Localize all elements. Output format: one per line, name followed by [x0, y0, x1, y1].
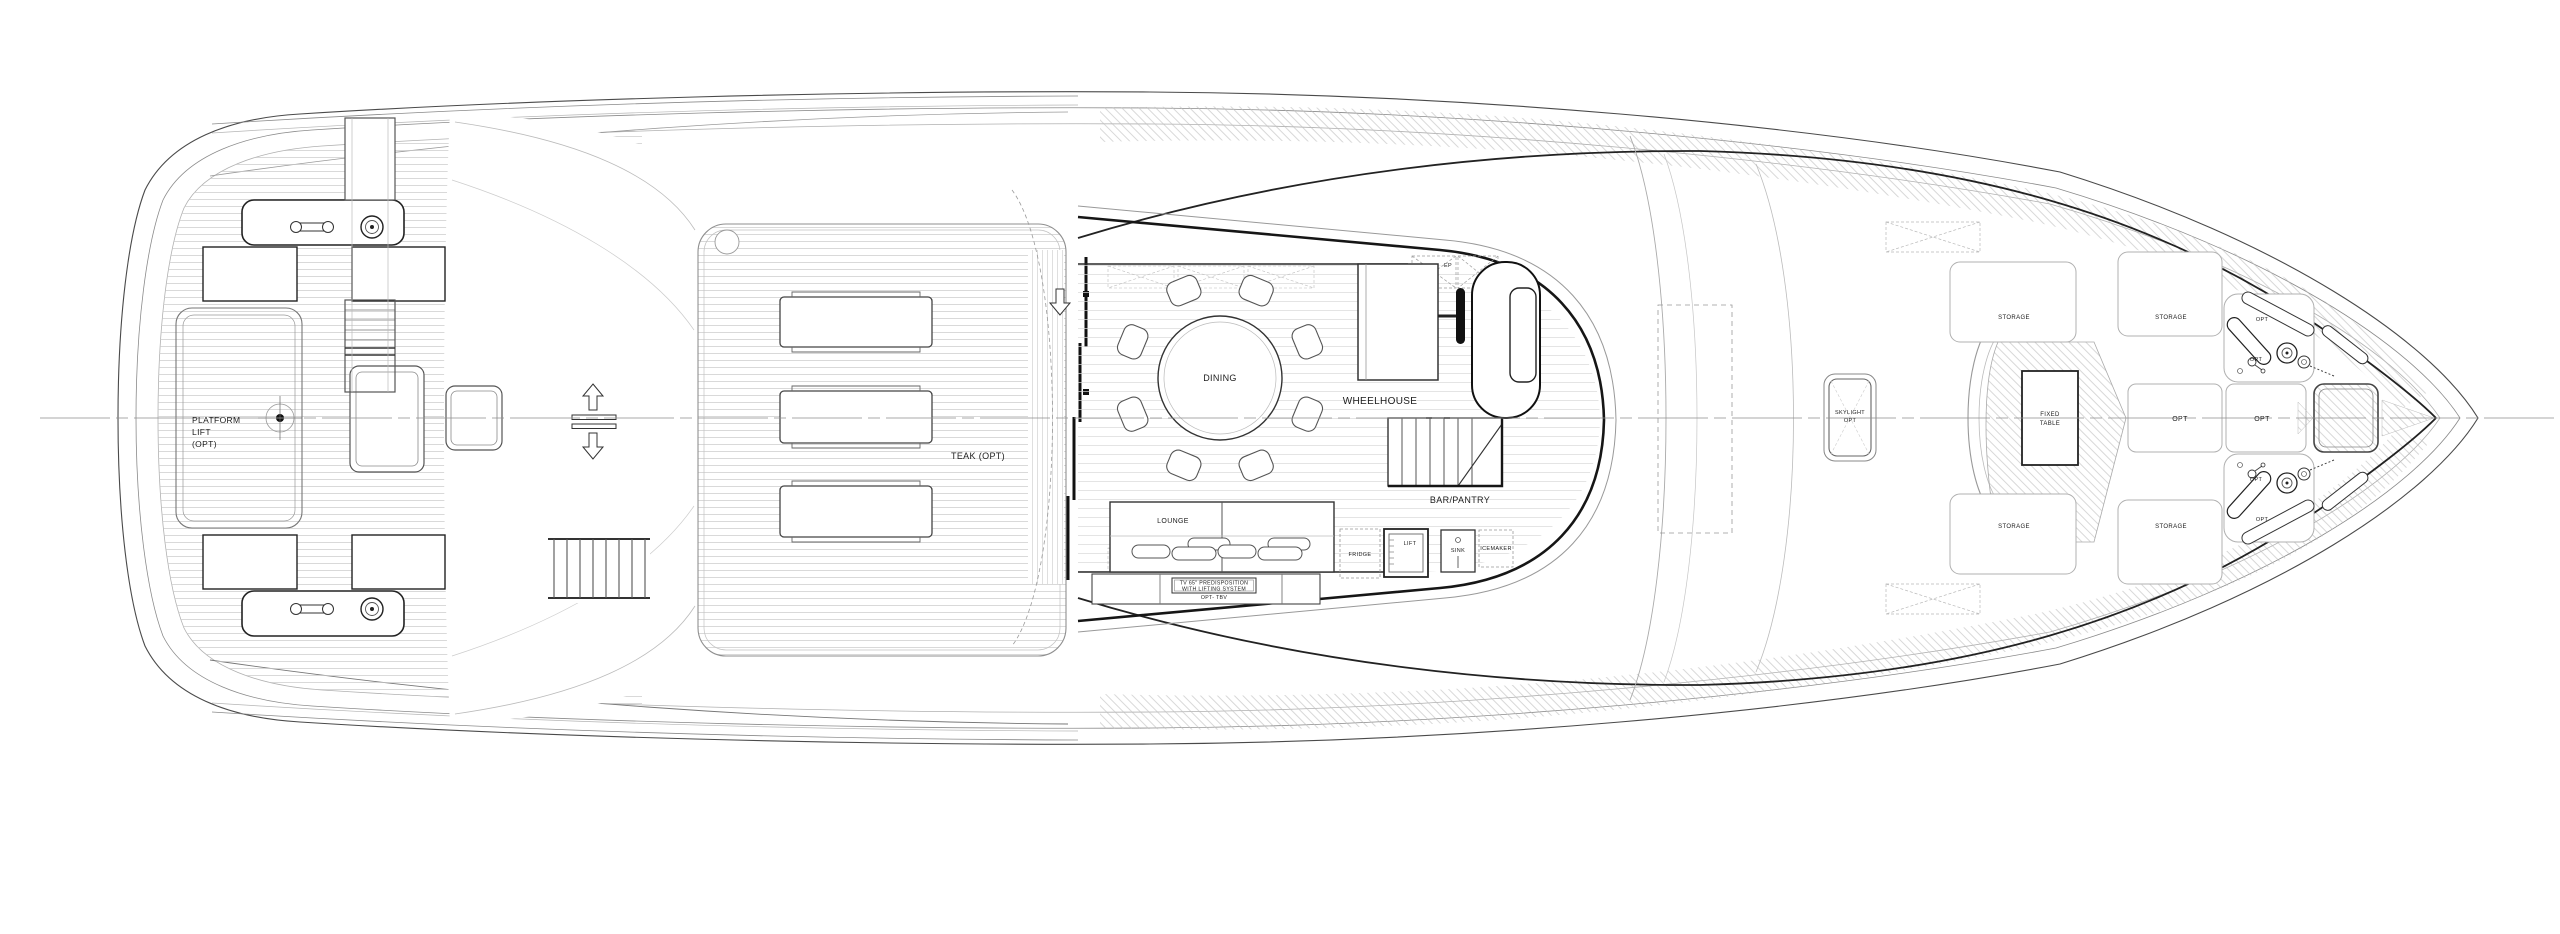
label-ep: EP: [1444, 263, 1452, 269]
label-platform-lift-3: (OPT): [192, 439, 217, 449]
storage-locker: [1950, 262, 2076, 342]
deck-hatch-large: [350, 366, 424, 472]
stern-locker-box: [203, 247, 297, 301]
storage-locker: [2118, 252, 2222, 336]
cockpit-corner-detail: [715, 230, 739, 254]
label-platform-lift-2: LIFT: [192, 427, 211, 437]
platform-steps: [558, 380, 628, 464]
label-opt-gear-2: OPT: [2250, 357, 2263, 363]
label-lounge: LOUNGE: [1157, 518, 1189, 525]
label-opt-gear-4: OPT: [2256, 517, 2269, 523]
steering-wheel-icon: [1456, 288, 1465, 344]
label-storage-1: STORAGE: [1998, 315, 2030, 321]
saloon: [1078, 206, 1616, 632]
label-tv-3: OPT- TBV: [1201, 595, 1228, 601]
label-fixed-table-1: FIXED: [2040, 412, 2060, 418]
sun-lounger: [780, 481, 932, 542]
sun-lounger: [780, 386, 932, 448]
label-skylight-1: SKYLIGHT: [1835, 410, 1865, 416]
sun-lounger: [780, 292, 932, 352]
label-storage-2: STORAGE: [2155, 315, 2187, 321]
lift-unit: [1384, 529, 1428, 577]
step-tread: [572, 415, 616, 420]
stern-locker-box: [203, 535, 297, 589]
storage-locker: [1950, 494, 2076, 574]
label-opt-gear-1: OPT: [2256, 317, 2269, 323]
boarding-ladder: [548, 534, 650, 603]
label-teak-opt: TEAK (OPT): [951, 451, 1005, 461]
transom-gear-bottom: [242, 591, 404, 636]
label-storage-3: STORAGE: [1998, 524, 2030, 530]
label-storage-4: STORAGE: [2155, 524, 2187, 530]
label-opt-cell-1: OPT: [2172, 416, 2188, 423]
helm-console: [1358, 264, 1438, 380]
label-tv-2: WITH LIFTING SYSTEM: [1182, 587, 1246, 593]
label-icemaker: ICEMAKER: [1480, 546, 1512, 552]
label-opt-cell-2: OPT: [2254, 416, 2270, 423]
yacht-deck-plan: PLATFORM LIFT (OPT) TEAK (OPT) DINING WH…: [0, 0, 2560, 934]
lounge-sofa: [1110, 502, 1334, 572]
label-skylight-2: OPT: [1844, 418, 1857, 424]
helm-seat-backrest: [1510, 288, 1536, 382]
label-opt-gear-3: OPT: [2250, 477, 2263, 483]
label-bar-pantry: BAR/PANTRY: [1430, 495, 1490, 505]
stern-locker-box: [352, 535, 445, 589]
label-fixed-table-2: TABLE: [2040, 421, 2060, 427]
label-lift: LIFT: [1404, 541, 1417, 547]
storage-locker: [2118, 500, 2222, 584]
label-platform-lift-1: PLATFORM: [192, 415, 240, 425]
step-tread: [572, 424, 616, 429]
transom-gear-top: [242, 200, 404, 245]
staircase-down: [1388, 418, 1502, 486]
label-wheelhouse: WHEELHOUSE: [1343, 396, 1418, 407]
stern-locker-box: [352, 247, 445, 301]
label-fridge: FRIDGE: [1349, 552, 1372, 558]
label-dining: DINING: [1203, 373, 1237, 383]
label-sink: SINK: [1451, 548, 1465, 554]
